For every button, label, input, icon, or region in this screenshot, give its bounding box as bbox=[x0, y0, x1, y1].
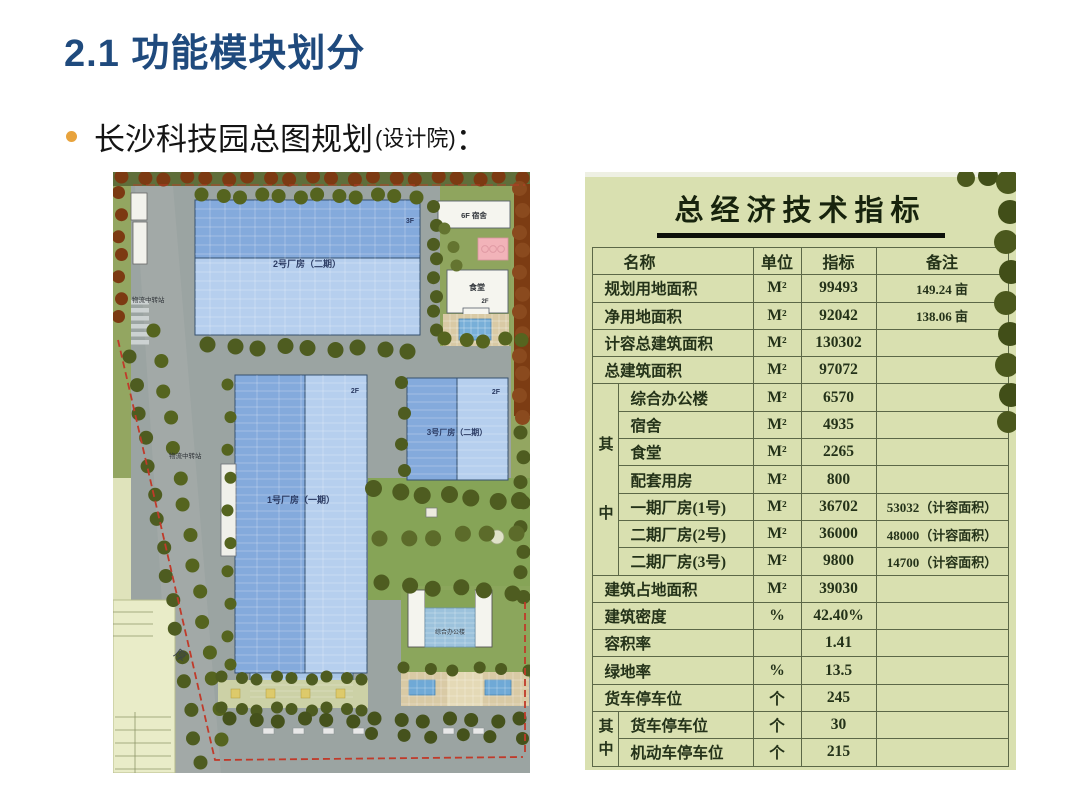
table-row: 其 中综合办公楼M²6570 bbox=[593, 384, 1008, 411]
name-cell: 货车停车位 bbox=[593, 684, 753, 711]
note-cell bbox=[876, 657, 1008, 684]
logistics-label-b: 物流中转站 bbox=[169, 451, 202, 460]
unit-cell: M² bbox=[753, 302, 801, 329]
table-row: 其 中货车停车位个30 bbox=[593, 712, 1008, 739]
pool-south-west bbox=[409, 680, 435, 695]
name-cell: 建筑占地面积 bbox=[593, 575, 753, 602]
canteen-floor-label: 2F bbox=[481, 299, 488, 305]
value-cell: 30 bbox=[801, 712, 876, 739]
unit-cell: M² bbox=[753, 439, 801, 466]
table-row: 机动车停车位个215 bbox=[593, 739, 1008, 766]
note-cell: 149.24 亩 bbox=[876, 275, 1008, 302]
site-plan-image: 2号厂房（二期） 3F 1号厂房（一期） 2F 3号厂房（二期） 2F 6F 宿… bbox=[113, 172, 530, 773]
table-row: 货车停车位个245 bbox=[593, 684, 1008, 711]
value-cell: 245 bbox=[801, 684, 876, 711]
note-cell bbox=[876, 329, 1008, 356]
factory3-label: 3号厂房（二期） bbox=[427, 427, 487, 437]
unit-cell: M² bbox=[753, 520, 801, 547]
table-row: 建筑密度%42.40% bbox=[593, 602, 1008, 629]
value-cell: 215 bbox=[801, 739, 876, 766]
value-cell: 13.5 bbox=[801, 657, 876, 684]
economic-indicator-panel: 总经济技术指标 名称单位指标备注 规划用地面积M²99493149.24 亩净用… bbox=[585, 172, 1016, 770]
econ-table: 名称单位指标备注 规划用地面积M²99493149.24 亩净用地面积M²920… bbox=[592, 247, 1008, 767]
site-plan-figure: 2号厂房（二期） 3F 1号厂房（一期） 2F 3号厂房（二期） 2F 6F 宿… bbox=[113, 172, 530, 773]
name-cell: 净用地面积 bbox=[593, 302, 753, 329]
office-label: 综合办公楼 bbox=[435, 628, 465, 636]
column-header: 备注 bbox=[876, 248, 1008, 275]
table-row: 容积率1.41 bbox=[593, 630, 1008, 657]
factory1-floor-label: 2F bbox=[351, 388, 360, 395]
name-cell: 配套用房 bbox=[619, 466, 753, 493]
value-cell: 92042 bbox=[801, 302, 876, 329]
page-title: 2.1 功能模块划分 bbox=[64, 22, 365, 77]
value-cell: 9800 bbox=[801, 548, 876, 575]
value-cell: 36702 bbox=[801, 493, 876, 520]
bullet-text: 长沙科技园总图规划 bbox=[94, 114, 373, 159]
park-pavilion bbox=[426, 508, 437, 517]
factory2-floor-label: 3F bbox=[406, 218, 415, 225]
unit-cell: M² bbox=[753, 548, 801, 575]
unit-cell: 个 bbox=[753, 684, 801, 711]
unit-cell: M² bbox=[753, 411, 801, 438]
unit-cell: % bbox=[753, 657, 801, 684]
bullet-line: 长沙科技园总图规划 (设计院) ： bbox=[66, 114, 487, 159]
table-row: 一期厂房(1号)M²3670253032（计容面积） bbox=[593, 493, 1008, 520]
value-cell: 97072 bbox=[801, 357, 876, 384]
logistics-building bbox=[131, 193, 147, 264]
column-header: 单位 bbox=[753, 248, 801, 275]
bullet-icon bbox=[66, 131, 77, 142]
plan-legend-panel bbox=[113, 600, 175, 773]
value-cell: 130302 bbox=[801, 329, 876, 356]
value-cell: 39030 bbox=[801, 575, 876, 602]
note-cell: 48000（计容面积） bbox=[876, 520, 1008, 547]
column-header: 名称 bbox=[593, 248, 753, 275]
canteen-label: 食堂 bbox=[469, 282, 485, 292]
group-label-cell: 其 中 bbox=[593, 712, 619, 767]
value-cell: 800 bbox=[801, 466, 876, 493]
table-row: 二期厂房(3号)M²980014700（计容面积） bbox=[593, 548, 1008, 575]
name-cell: 一期厂房(1号) bbox=[619, 493, 753, 520]
value-cell: 4935 bbox=[801, 411, 876, 438]
econ-title-underline bbox=[657, 233, 945, 238]
table-row: 宿舍M²4935 bbox=[593, 411, 1008, 438]
table-row: 计容总建筑面积M²130302 bbox=[593, 329, 1008, 356]
value-cell: 42.40% bbox=[801, 602, 876, 629]
econ-table-body: 规划用地面积M²99493149.24 亩净用地面积M²92042138.06 … bbox=[593, 275, 1008, 766]
table-row: 规划用地面积M²99493149.24 亩 bbox=[593, 275, 1008, 302]
dormitory-label: 6F 宿舍 bbox=[461, 210, 487, 220]
table-row: 二期厂房(2号)M²3600048000（计容面积） bbox=[593, 520, 1008, 547]
factory2-label: 2号厂房（二期） bbox=[273, 258, 341, 269]
note-cell: 14700（计容面积） bbox=[876, 548, 1008, 575]
name-cell: 货车停车位 bbox=[619, 712, 753, 739]
unit-cell: M² bbox=[753, 357, 801, 384]
econ-table-head: 名称单位指标备注 bbox=[593, 248, 1008, 275]
table-row: 配套用房M²800 bbox=[593, 466, 1008, 493]
table-row: 总建筑面积M²97072 bbox=[593, 357, 1008, 384]
unit-cell bbox=[753, 630, 801, 657]
note-cell bbox=[876, 630, 1008, 657]
unit-cell: M² bbox=[753, 384, 801, 411]
note-cell bbox=[876, 357, 1008, 384]
name-cell: 宿舍 bbox=[619, 411, 753, 438]
unit-cell: 个 bbox=[753, 739, 801, 766]
note-cell bbox=[876, 712, 1008, 739]
logistics-label-a: 物流中转站 bbox=[132, 295, 165, 304]
note-cell bbox=[876, 684, 1008, 711]
table-row: 绿地率%13.5 bbox=[593, 657, 1008, 684]
unit-cell: M² bbox=[753, 575, 801, 602]
name-cell: 二期厂房(3号) bbox=[619, 548, 753, 575]
note-cell: 138.06 亩 bbox=[876, 302, 1008, 329]
econ-table-title: 总经济技术指标 bbox=[595, 187, 1006, 229]
note-cell: 53032（计容面积） bbox=[876, 493, 1008, 520]
unit-cell: 个 bbox=[753, 712, 801, 739]
value-cell: 6570 bbox=[801, 384, 876, 411]
factory1-label: 1号厂房（一期） bbox=[267, 494, 335, 505]
bullet-colon: ： bbox=[456, 114, 487, 159]
unit-cell: % bbox=[753, 602, 801, 629]
unit-cell: M² bbox=[753, 329, 801, 356]
name-cell: 计容总建筑面积 bbox=[593, 329, 753, 356]
name-cell: 食堂 bbox=[619, 439, 753, 466]
note-cell bbox=[876, 439, 1008, 466]
value-cell: 36000 bbox=[801, 520, 876, 547]
name-cell: 绿地率 bbox=[593, 657, 753, 684]
note-cell bbox=[876, 466, 1008, 493]
group-label-cell: 其 中 bbox=[593, 384, 619, 575]
slide: 2.1 功能模块划分 长沙科技园总图规划 (设计院) ： bbox=[0, 0, 1080, 810]
name-cell: 综合办公楼 bbox=[619, 384, 753, 411]
note-cell bbox=[876, 739, 1008, 766]
note-cell bbox=[876, 575, 1008, 602]
column-header: 指标 bbox=[801, 248, 876, 275]
note-cell bbox=[876, 411, 1008, 438]
table-row: 建筑占地面积M²39030 bbox=[593, 575, 1008, 602]
unit-cell: M² bbox=[753, 493, 801, 520]
office-building bbox=[408, 590, 492, 647]
panel-top-strip bbox=[585, 172, 1016, 177]
value-cell: 2265 bbox=[801, 439, 876, 466]
value-cell: 99493 bbox=[801, 275, 876, 302]
value-cell: 1.41 bbox=[801, 630, 876, 657]
table-row: 食堂M²2265 bbox=[593, 439, 1008, 466]
canteen-building bbox=[447, 270, 508, 316]
factory3-floor-label: 2F bbox=[492, 389, 501, 396]
sports-court bbox=[478, 238, 508, 260]
name-cell: 容积率 bbox=[593, 630, 753, 657]
name-cell: 机动车停车位 bbox=[619, 739, 753, 766]
table-row: 净用地面积M²92042138.06 亩 bbox=[593, 302, 1008, 329]
bullet-paren-text: (设计院) bbox=[375, 121, 456, 153]
unit-cell: M² bbox=[753, 275, 801, 302]
table-header-row: 名称单位指标备注 bbox=[593, 248, 1008, 275]
unit-cell: M² bbox=[753, 466, 801, 493]
note-cell bbox=[876, 602, 1008, 629]
note-cell bbox=[876, 384, 1008, 411]
name-cell: 总建筑面积 bbox=[593, 357, 753, 384]
name-cell: 规划用地面积 bbox=[593, 275, 753, 302]
name-cell: 建筑密度 bbox=[593, 602, 753, 629]
name-cell: 二期厂房(2号) bbox=[619, 520, 753, 547]
